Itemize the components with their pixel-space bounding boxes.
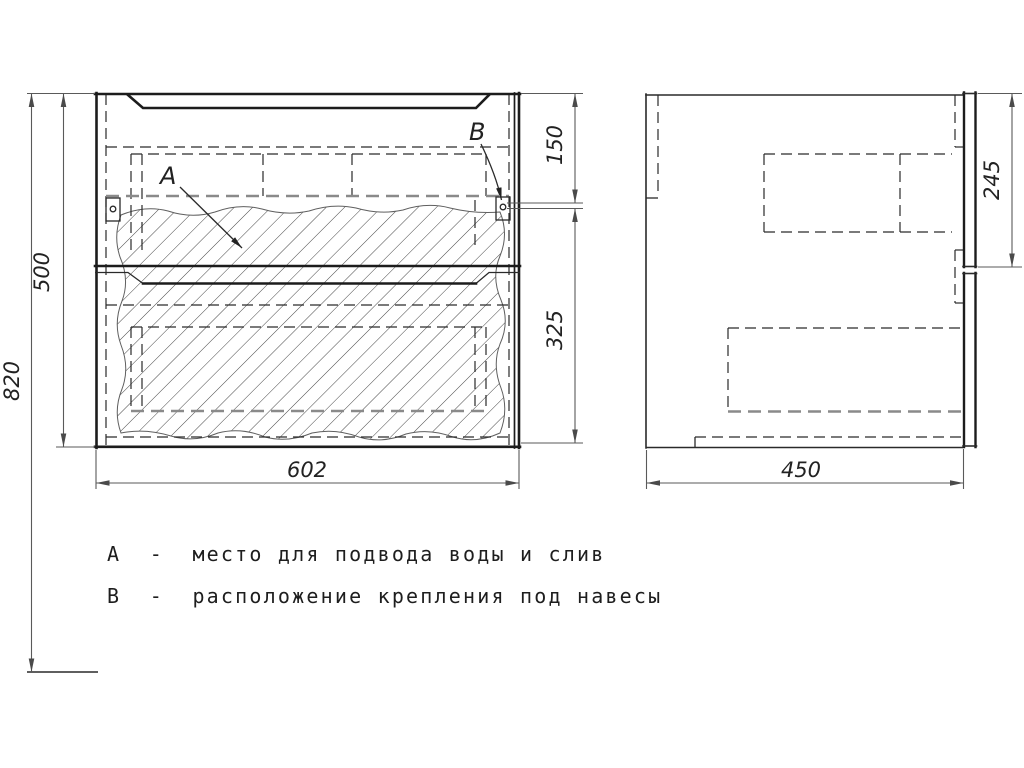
callout-b: В	[469, 118, 502, 200]
drawing-canvas: А В	[0, 0, 1024, 768]
dim-cabinet-height: 500	[30, 252, 54, 292]
dim-602: 602	[96, 458, 519, 483]
dim-450: 450	[647, 458, 964, 483]
dim-cabinet-width: 602	[287, 458, 327, 482]
legend-line-b: В - расположение крепления под навесы	[107, 584, 662, 608]
dim-500: 500	[30, 94, 64, 448]
dim-150: 150	[543, 94, 575, 204]
top-drawer-groove	[128, 95, 489, 108]
side-outline	[646, 93, 977, 449]
label-a: А	[158, 162, 176, 190]
side-view	[646, 93, 977, 449]
dim-mount-depth: 245	[980, 160, 1004, 200]
legend-line-a: А - место для подвода воды и слив	[107, 542, 605, 566]
mounting-bracket-left	[106, 198, 120, 221]
dim-total-height: 820	[0, 361, 24, 401]
side-hidden-lines	[658, 95, 964, 447]
section-hatch-area	[117, 205, 506, 439]
cabinet-drawing: А В	[0, 0, 1024, 768]
dim-cabinet-depth: 450	[781, 458, 821, 482]
dim-820: 820	[0, 94, 32, 673]
dim-325: 325	[543, 209, 575, 444]
drawer-front-lower-profile	[963, 273, 977, 447]
dim-mount-to-bottom: 325	[543, 310, 567, 350]
drawer-front-upper-profile	[963, 93, 977, 268]
label-b: В	[469, 118, 485, 146]
dim-245: 245	[980, 94, 1012, 268]
front-view: А В	[95, 93, 520, 448]
dim-top-to-mount: 150	[543, 125, 567, 165]
